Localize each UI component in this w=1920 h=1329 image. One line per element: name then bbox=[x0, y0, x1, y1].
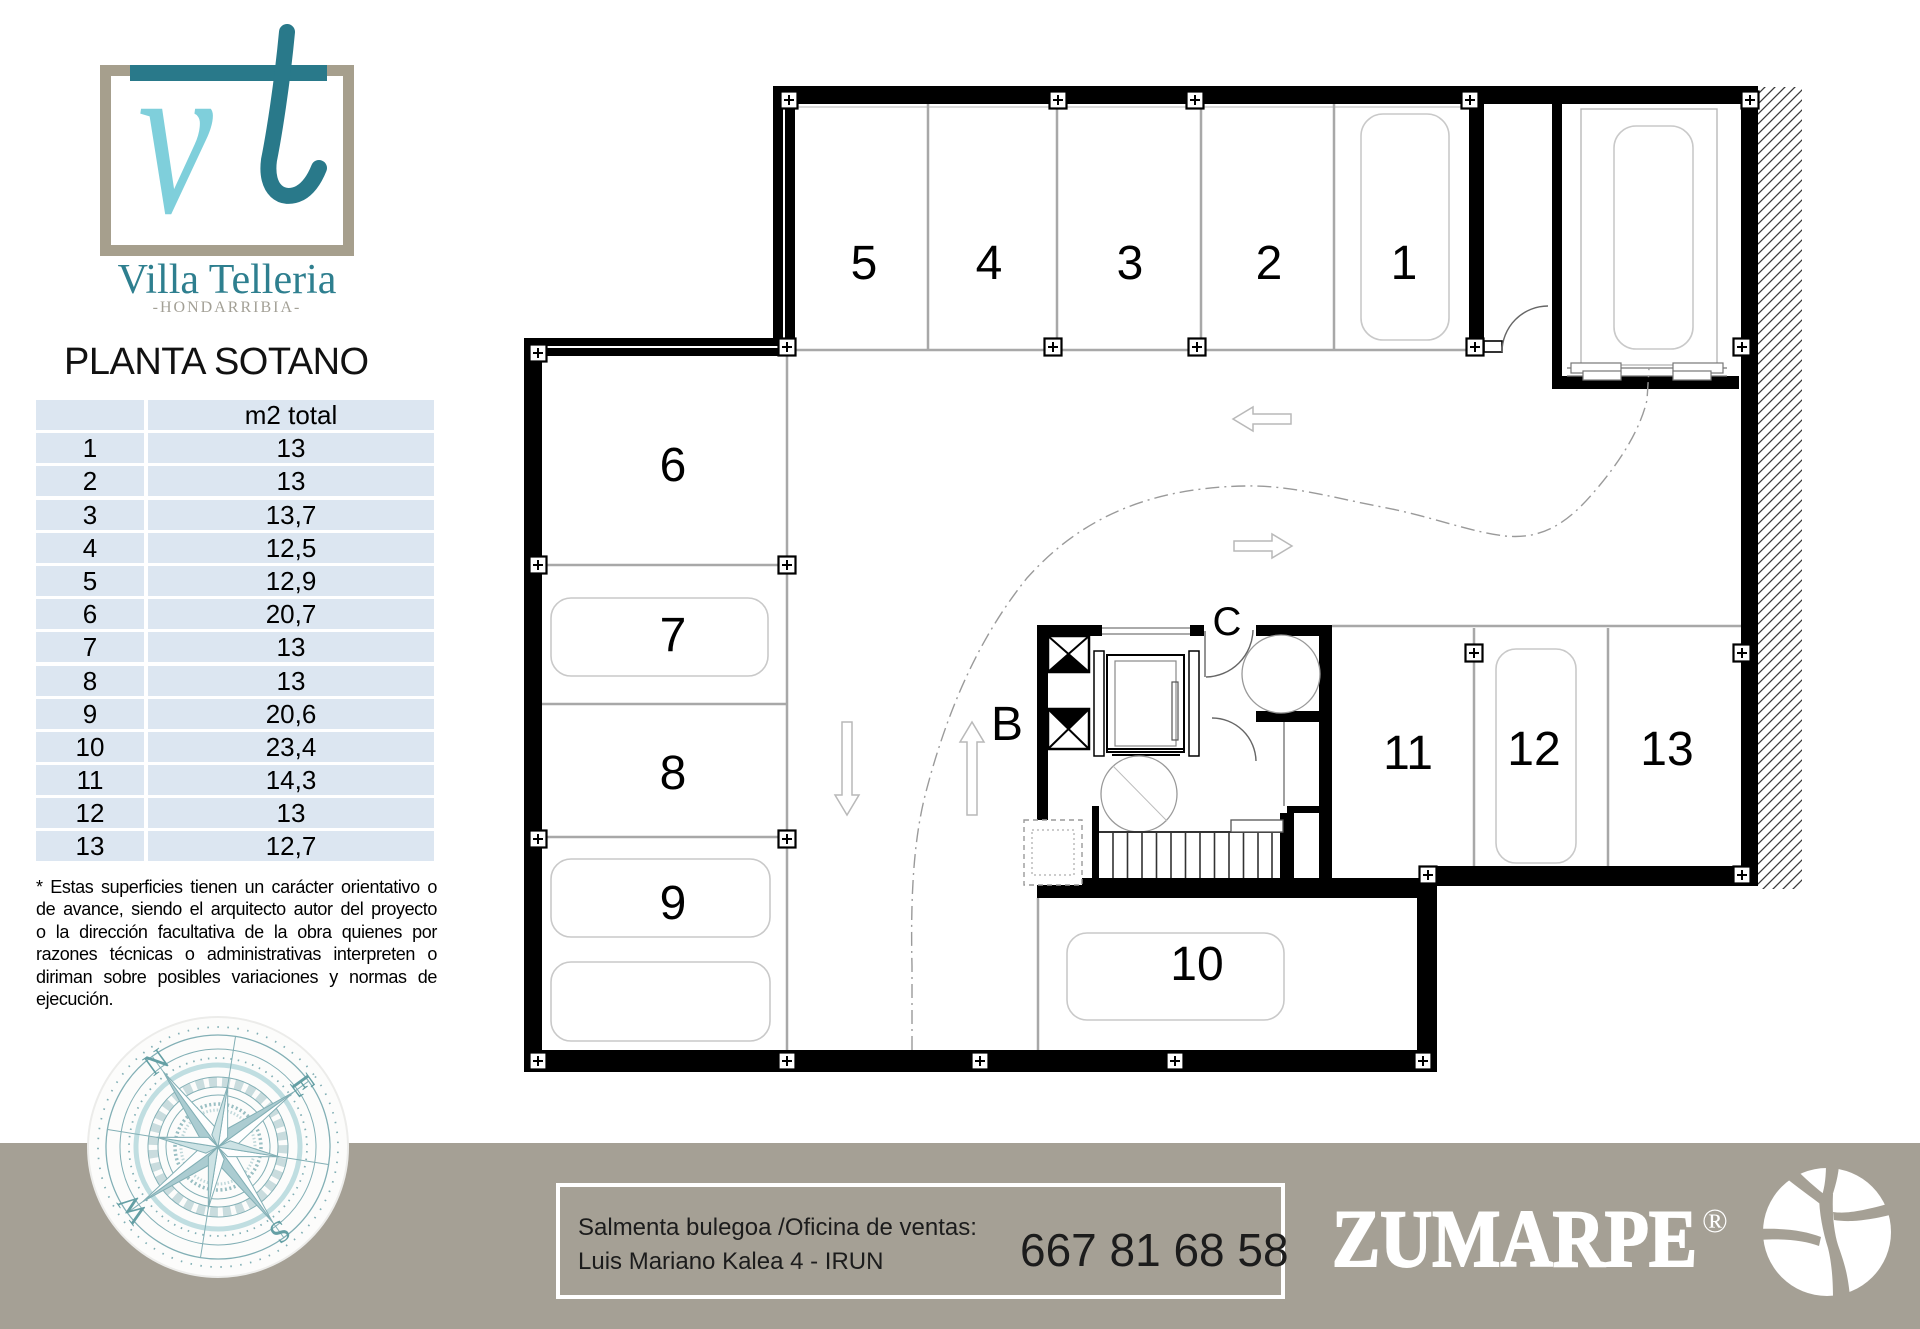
svg-text:C: C bbox=[1213, 600, 1242, 644]
svg-text:8: 8 bbox=[660, 747, 687, 800]
svg-text:1: 1 bbox=[1391, 237, 1418, 290]
svg-text:B: B bbox=[991, 698, 1023, 751]
svg-text:11: 11 bbox=[1383, 727, 1433, 780]
svg-text:10: 10 bbox=[1170, 938, 1223, 991]
svg-text:12: 12 bbox=[1507, 723, 1560, 776]
svg-text:6: 6 bbox=[660, 439, 687, 492]
svg-text:4: 4 bbox=[976, 237, 1003, 290]
svg-text:2: 2 bbox=[1256, 237, 1283, 290]
svg-text:3: 3 bbox=[1117, 237, 1144, 290]
svg-text:13: 13 bbox=[1640, 723, 1693, 776]
svg-text:9: 9 bbox=[660, 877, 687, 930]
svg-text:5: 5 bbox=[851, 237, 878, 290]
svg-text:7: 7 bbox=[660, 609, 687, 662]
